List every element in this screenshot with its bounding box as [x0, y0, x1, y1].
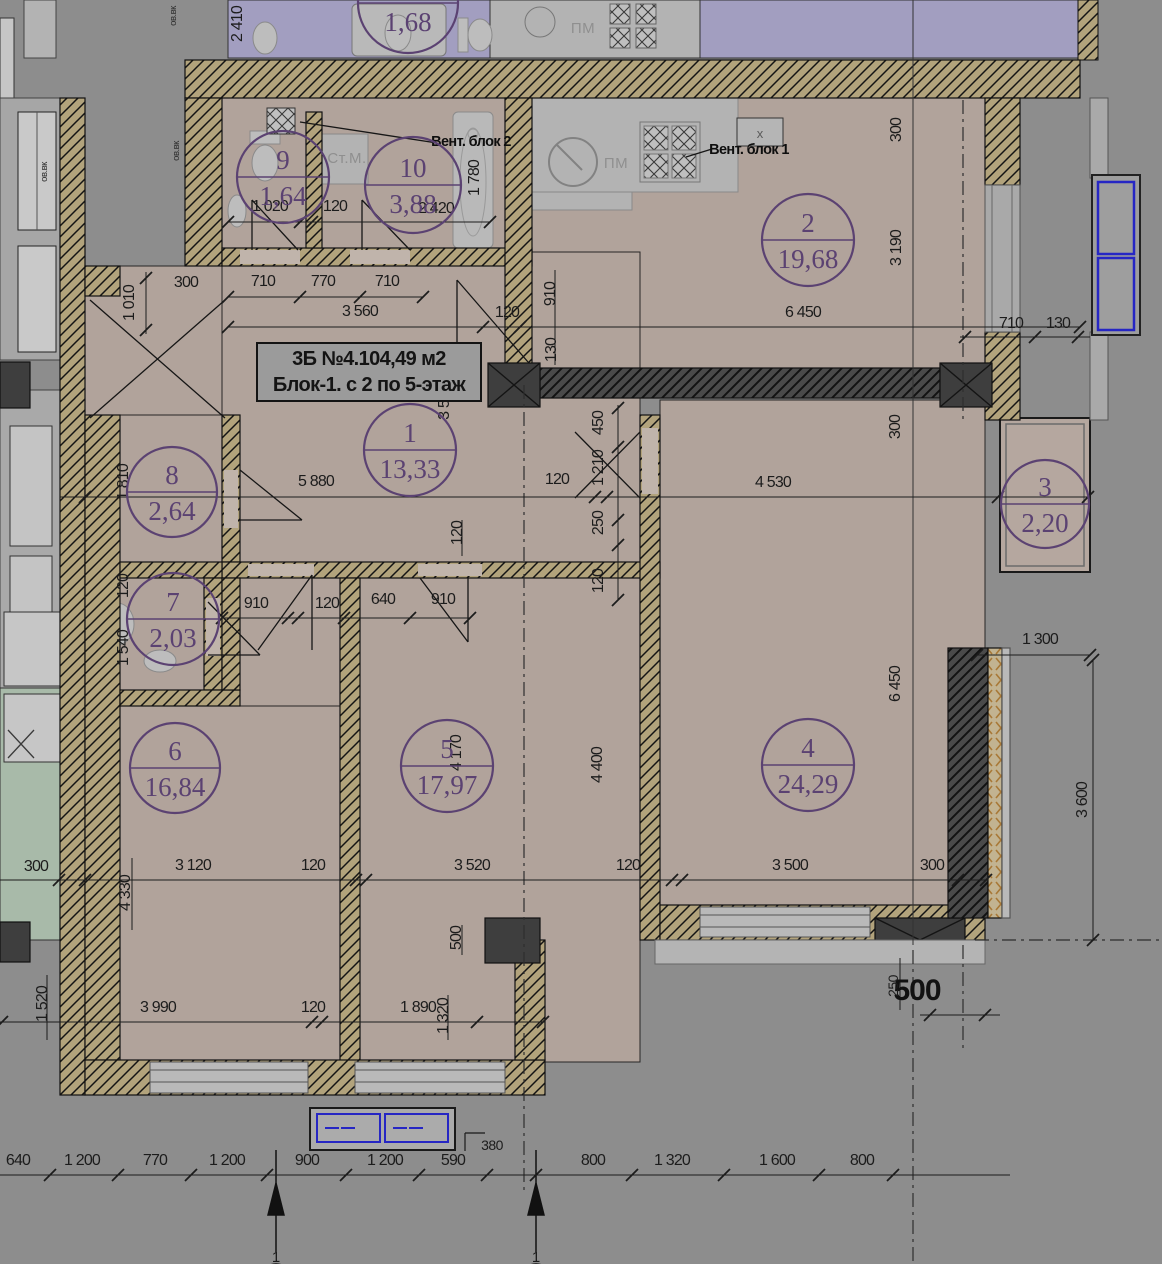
- room-area: 19,68: [778, 244, 839, 274]
- sink: [144, 650, 176, 672]
- dimension-label: 130: [1046, 315, 1071, 332]
- dimension-label-vertical: 4 330: [117, 874, 134, 911]
- room-badge: 72,03: [127, 573, 219, 665]
- room-number: 2: [801, 208, 815, 238]
- dimension-label-vertical: 130: [543, 337, 560, 362]
- dimension-label: 710: [999, 315, 1024, 332]
- dimension-label: 6 450: [785, 304, 822, 321]
- room-area: 1,64: [259, 181, 307, 211]
- kitchen-counter: [532, 98, 738, 192]
- window-opening: [700, 907, 870, 937]
- dimension-label: 120: [323, 198, 348, 215]
- dimension-label: 300: [174, 274, 199, 291]
- dimension-label: 640: [371, 591, 396, 608]
- room-number: 9: [276, 145, 290, 175]
- dimension-label-vertical: ов.вк: [39, 161, 50, 182]
- dimension-label: 120: [315, 595, 340, 612]
- room-badge: 424,29: [762, 719, 854, 811]
- dimension-label: 1 600: [759, 1152, 796, 1169]
- dimension-label-vertical: 250: [885, 974, 901, 997]
- dimension-label-vertical: 6 450: [887, 665, 904, 702]
- dimension-label: 300: [24, 858, 49, 875]
- dimension-label: 120: [495, 304, 520, 321]
- dimension-label-vertical: 3 5: [436, 399, 453, 420]
- dimension-label: 800: [581, 1152, 606, 1169]
- dimension-label: 4 530: [755, 474, 792, 491]
- dimension-label: 3 520: [454, 857, 491, 874]
- dimension-label-vertical: 300: [887, 414, 904, 439]
- apartment-title-line1: 3Б №4.104,49 м2: [258, 346, 480, 372]
- room-number: 5: [440, 734, 454, 764]
- dimension-label-vertical: 120: [449, 520, 466, 545]
- dimension-label-vertical: 250: [590, 510, 607, 535]
- room-badge: 32,20: [1001, 460, 1089, 548]
- dimension-label: 590: [441, 1152, 466, 1169]
- dimension-label-vertical: 120: [590, 568, 607, 593]
- dimension-label: 300: [920, 857, 945, 874]
- dimension-label: 1 200: [64, 1152, 101, 1169]
- dimension-label: 5 880: [298, 473, 335, 490]
- room-number: 10: [400, 153, 427, 183]
- dimension-label: 770: [143, 1152, 168, 1169]
- dimension-label: 3 120: [175, 857, 212, 874]
- room-badge: 616,84: [130, 723, 220, 813]
- dimension-label-vertical: 1 780: [466, 159, 483, 196]
- washing-machine-label: Ст.М.: [327, 150, 366, 167]
- dimension-label-vertical: 3 600: [1074, 781, 1091, 818]
- dishwasher-label-top: ПМ: [571, 20, 595, 37]
- toilet: [468, 19, 492, 51]
- dimension-label: 910: [431, 591, 456, 608]
- room-area: 2,20: [1021, 508, 1068, 538]
- vent-block-1-label: Вент. блок 1: [709, 142, 789, 158]
- room-number: 1: [403, 418, 417, 448]
- dimension-label-vertical: 1 810: [115, 463, 132, 500]
- dimension-label: 3 560: [342, 303, 379, 320]
- window-opening-right: [985, 185, 1020, 332]
- sink: [253, 22, 277, 54]
- dimension-label: 640: [6, 1152, 31, 1169]
- dimension-label-vertical: 500: [448, 925, 465, 950]
- dimension-label-vertical: 4 400: [589, 746, 606, 783]
- room-number: 8: [165, 460, 179, 490]
- dimension-label-vertical: 450: [590, 410, 607, 435]
- room-number: 4: [801, 733, 815, 763]
- dimension-label-vertical: 1 320: [435, 997, 452, 1034]
- floor-plan-drawing: 1 0201202 4203007107707103 5601206 45071…: [0, 0, 1162, 1264]
- room-badge: 82,64: [127, 447, 217, 537]
- sill: [655, 940, 985, 964]
- room-badge: 517,97: [401, 720, 493, 812]
- room-number: 4: [401, 0, 415, 1]
- dimension-label-vertical: ов.вк: [171, 140, 182, 161]
- dimension-label: 120: [301, 999, 326, 1016]
- dimension-label: 120: [616, 857, 641, 874]
- dimension-label-vertical: 3 190: [888, 229, 905, 266]
- room-badge: 91,64: [237, 131, 329, 223]
- dimension-label: 1 200: [209, 1152, 246, 1169]
- room-badge: 219,68: [762, 194, 854, 286]
- toilet: [252, 145, 278, 181]
- dimension-label: 910: [244, 595, 269, 612]
- dimension-label: 710: [375, 273, 400, 290]
- window-opening: [150, 1062, 308, 1093]
- dimension-label-vertical: 1 210: [590, 449, 607, 486]
- room-number: 7: [166, 587, 180, 617]
- vent-shaft-mark: x: [757, 126, 764, 141]
- dimension-label: 380: [481, 1137, 504, 1153]
- dimension-label-vertical: 120: [115, 573, 132, 598]
- axis-label-1: 1: [532, 1249, 540, 1264]
- axis-label-1: 1: [272, 1249, 280, 1264]
- dimension-label: 120: [301, 857, 326, 874]
- dimension-label: 3 990: [140, 999, 177, 1016]
- dimension-label-vertical: 300: [888, 117, 905, 142]
- dimension-label-vertical: 1 520: [34, 985, 51, 1022]
- dimension-label-vertical: ов.вк: [168, 5, 179, 26]
- room-area: 3,88: [389, 189, 436, 219]
- room-area: 13,33: [380, 454, 441, 484]
- room-number: 3: [1038, 472, 1052, 502]
- axis-arrow: [259, 1150, 293, 1264]
- room-number: 6: [168, 736, 182, 766]
- axis-arrow: [519, 1150, 553, 1264]
- dimension-label: 3 500: [772, 857, 809, 874]
- dimension-label-vertical: 1 010: [121, 284, 138, 321]
- apartment-title-line2: Блок-1. с 2 по 5-этаж: [258, 372, 480, 398]
- dimension-label-vertical: 2 410: [229, 5, 246, 42]
- room-badge: 113,33: [364, 404, 456, 496]
- dimension-label: 1 890: [400, 999, 437, 1016]
- room-area: 2,03: [149, 623, 196, 653]
- dimension-label: 800: [850, 1152, 875, 1169]
- room-area: 1,68: [384, 7, 431, 37]
- dimension-label: 1 200: [367, 1152, 404, 1169]
- room-area: 17,97: [417, 770, 478, 800]
- dishwasher-label: ПМ: [604, 155, 628, 172]
- dimension-label: 770: [311, 273, 336, 290]
- dimension-label: 1 320: [654, 1152, 691, 1169]
- apartment-title-box: 3Б №4.104,49 м2 Блок-1. с 2 по 5-этаж: [256, 342, 482, 402]
- window-opening: [355, 1062, 505, 1093]
- floor-plan-canvas: 1 0201202 4203007107707103 5601206 45071…: [0, 0, 1162, 1264]
- dimension-label-vertical: 910: [542, 281, 559, 306]
- dimension-label: 710: [251, 273, 276, 290]
- dimension-label: 1 300: [1022, 631, 1059, 648]
- room-area: 24,29: [778, 769, 839, 799]
- dimension-label: 120: [545, 471, 570, 488]
- room-area: 2,64: [148, 496, 196, 526]
- dimension-label: 900: [295, 1152, 320, 1169]
- room-area: 16,84: [145, 772, 206, 802]
